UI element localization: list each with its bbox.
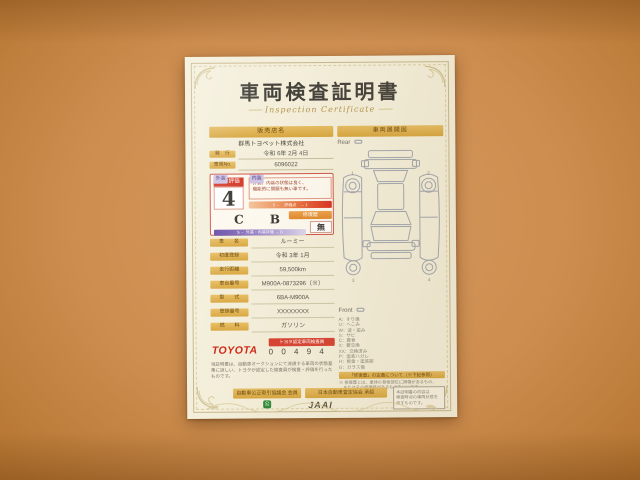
diagram-marker: 4 bbox=[428, 277, 431, 282]
field-row-model-code: 型 式 6BA-M900A bbox=[210, 294, 334, 309]
field-label: 初度登録 bbox=[210, 253, 248, 261]
field-label: 登録番号 bbox=[210, 309, 248, 317]
field-value: XXXXXXXX bbox=[251, 308, 334, 319]
subtitle-decoration: ──── bbox=[249, 106, 262, 114]
diagram-section-header: 車両展開図 bbox=[337, 125, 443, 137]
interior-grade: B bbox=[266, 211, 284, 228]
rating-scale-bar: 5 ← 評価点 → 1 bbox=[249, 201, 332, 209]
footer-note-line: 検査時点の車両状態を bbox=[396, 394, 442, 400]
footer-note-line: 示すものです。 bbox=[396, 400, 442, 406]
repair-history-value: 無 bbox=[310, 221, 332, 233]
vehicle-no-value: 6096022 bbox=[238, 161, 333, 171]
inspector-block: TOYOTA トヨタ認定車両検査員 0 0 4 9 4 bbox=[211, 338, 335, 359]
overall-rating-box: 総合評価 4 外装、内装の状態は良く、 機能的に問題も無い車です。 5 ← 評価… bbox=[210, 173, 334, 236]
symbol-legend: A：すり傷 U：へこみ W：波・歪み S：サビ C：腐食 X：要交換 XX：交換… bbox=[339, 316, 445, 370]
certified-inspector-badge: トヨタ認定車両検査員 bbox=[269, 338, 335, 346]
front-label: Front bbox=[338, 307, 444, 315]
field-row-mileage: 走行距離 59,500km bbox=[210, 266, 334, 281]
field-value: 6BA-M900A bbox=[251, 294, 334, 305]
diagram-column: Rear bbox=[337, 139, 445, 391]
inspector-number: 0 0 4 9 4 bbox=[269, 347, 327, 356]
field-value: M900A-0873296（※） bbox=[251, 280, 334, 291]
overall-rating-cell: 4 bbox=[214, 187, 244, 210]
inspection-certificate-sheet: 車両検査証明書 ──── Inspection Certificate ────… bbox=[185, 55, 458, 419]
subtitle-decoration: ──── bbox=[379, 106, 392, 114]
dealer-name: 群馬トヨペット株式会社 bbox=[209, 140, 333, 150]
field-label: 車 名 bbox=[210, 239, 248, 247]
fair-trade-mark-icon: 公 bbox=[263, 400, 271, 408]
rear-direction-icon bbox=[354, 140, 362, 144]
field-row-first-registration: 初度登録 令和 3年 1月 bbox=[210, 252, 334, 267]
corner-flourish-icon bbox=[195, 385, 221, 411]
details-column: 群馬トヨペット株式会社 発 行 令和 6年 2月 4日 車両No. 609602… bbox=[209, 140, 335, 380]
vehicle-fields: 車 名 ルーミー 初度登録 令和 3年 1月 走行距離 59,500km 車台番… bbox=[210, 238, 335, 337]
photo-background: { "colors": { "background": "#cd8d4f", "… bbox=[0, 0, 640, 480]
certificate-subtitle-row: ──── Inspection Certificate ──── bbox=[185, 104, 455, 115]
field-value: 令和 3年 1月 bbox=[251, 252, 334, 263]
certificate-title: 車両検査証明書 bbox=[185, 75, 455, 106]
interior-label: 内装 bbox=[250, 174, 264, 183]
exterior-label: 外装 bbox=[214, 175, 228, 184]
field-value: 59,500km bbox=[251, 266, 334, 277]
issue-date-value: 令和 6年 2月 4日 bbox=[238, 150, 333, 160]
jaai-logo: JAAI bbox=[308, 400, 333, 410]
front-label-text: Front bbox=[338, 308, 352, 314]
vehicle-no-row: 車両No. 6096022 bbox=[209, 161, 333, 172]
overall-rating-value: 4 bbox=[222, 187, 236, 211]
vehicle-no-label: 車両No. bbox=[209, 162, 235, 169]
field-row-chassis-no: 車台番号 M900A-0873296（※） bbox=[210, 280, 334, 295]
issue-date-row: 発 行 令和 6年 2月 4日 bbox=[209, 150, 333, 161]
dealer-section-header: 販売店名 bbox=[209, 126, 333, 138]
fair-trade-council-badge: 自動車公正取引協議会 会員 bbox=[233, 388, 301, 398]
repair-history-label: 修復歴 bbox=[289, 211, 332, 219]
field-row-fuel: 燃 料 ガソリン bbox=[211, 322, 335, 337]
field-label: 走行距離 bbox=[210, 267, 248, 275]
field-label: 型 式 bbox=[210, 295, 248, 303]
car-condition-diagram: 1 2 3 4 bbox=[337, 147, 444, 308]
legend-item: G：ガラス傷 bbox=[339, 364, 445, 370]
rear-label: Rear bbox=[337, 139, 443, 147]
certificate-subtitle: Inspection Certificate bbox=[265, 105, 375, 115]
front-direction-icon bbox=[356, 308, 364, 312]
field-label: 燃 料 bbox=[211, 323, 249, 331]
car-diagram-svg: 1 2 3 4 bbox=[337, 147, 444, 308]
jaai-approval-badge: 日本自動車査定協会 承認 bbox=[305, 388, 387, 399]
repair-definition-ribbon: 「修復歴」の定義について（※下記参照） bbox=[339, 371, 445, 379]
field-value: ガソリン bbox=[252, 322, 335, 333]
field-row-car-name: 車 名 ルーミー bbox=[210, 238, 334, 253]
exterior-grade: C bbox=[230, 212, 248, 229]
issue-date-label: 発 行 bbox=[209, 151, 235, 158]
grade-scale-bar: S ← 外装・内装評価 → D bbox=[214, 229, 306, 235]
diagram-marker: 3 bbox=[352, 278, 355, 283]
field-row-registration-no: 登録番号 XXXXXXXX bbox=[210, 308, 334, 323]
footer-note-box: 本証明書の内容は 検査時点の車両状態を 示すものです。 bbox=[393, 386, 445, 409]
field-value: ルーミー bbox=[251, 238, 334, 249]
rating-comment-line2: 機能的に問題も無い車です。 bbox=[253, 186, 328, 193]
toyota-logo: TOYOTA bbox=[212, 344, 258, 356]
field-label: 車台番号 bbox=[210, 281, 248, 289]
rear-label-text: Rear bbox=[337, 140, 350, 146]
disclaimer-text: 当証明書は、自動車オークションにて流通する車両の状態基準に詳しい、トヨタが認定し… bbox=[211, 361, 335, 380]
